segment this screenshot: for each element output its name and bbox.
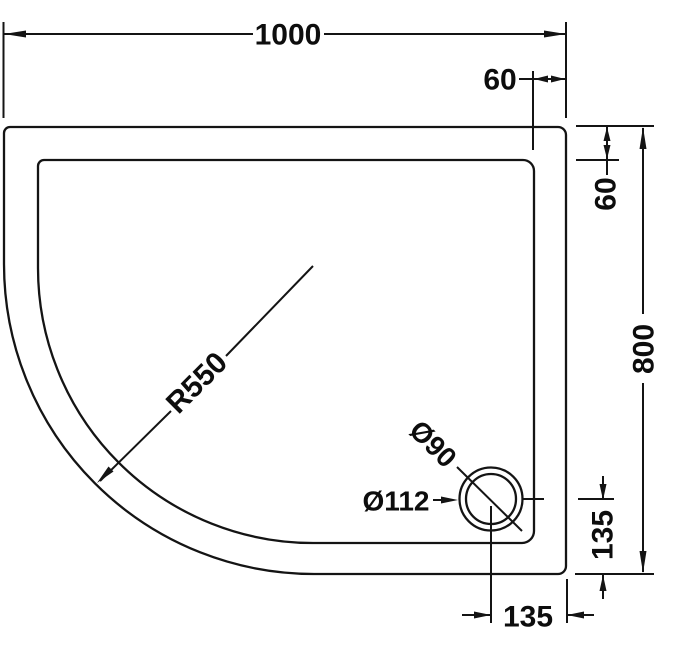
arrowhead — [640, 551, 647, 573]
arrowhead — [600, 484, 607, 500]
arrowhead — [604, 127, 611, 141]
dimension-label-waste-outer-diameter: Ø112 — [363, 486, 430, 517]
arrowhead — [544, 31, 566, 38]
technical-drawing-page: 1000 60 60 800 — [0, 0, 675, 645]
dimension-waste-offset-right: 135 — [523, 476, 620, 599]
dimension-label-waste-offset-right: 135 — [587, 510, 620, 560]
arrowhead — [600, 575, 607, 591]
technical-drawing-canvas: 1000 60 60 800 — [0, 0, 675, 645]
arrowhead — [604, 145, 611, 159]
arrowhead — [567, 612, 584, 619]
arrowhead — [4, 31, 26, 38]
dimension-label-overall-width: 1000 — [255, 19, 322, 52]
dimension-corner-radius: R550 — [97, 266, 313, 483]
dimension-label-waste-inner-diameter: Ø90 — [403, 414, 462, 473]
dimension-label-overall-depth: 800 — [628, 324, 661, 374]
arrowhead — [640, 127, 647, 149]
label-waste-outer-diameter: Ø112 — [363, 486, 458, 517]
arrowhead — [534, 76, 548, 83]
tray-outer-outline — [4, 127, 566, 574]
dimension-label-corner-radius: R550 — [160, 346, 234, 420]
dimension-rim-inset-top: 60 — [483, 64, 565, 151]
dimension-waste-offset-bottom: 135 — [462, 506, 594, 634]
dimension-overall-width: 1000 — [4, 19, 567, 119]
arrowhead — [551, 76, 565, 83]
tray-inner-outline — [38, 160, 534, 543]
radius-leader-line — [226, 266, 313, 356]
dimension-label-rim-inset-right: 60 — [590, 177, 623, 210]
dimension-label-waste-offset-bottom: 135 — [503, 601, 553, 634]
dimension-label-rim-inset-top: 60 — [483, 64, 516, 97]
shower-tray — [4, 127, 566, 574]
arrowhead — [441, 497, 458, 504]
arrowhead — [474, 612, 491, 619]
